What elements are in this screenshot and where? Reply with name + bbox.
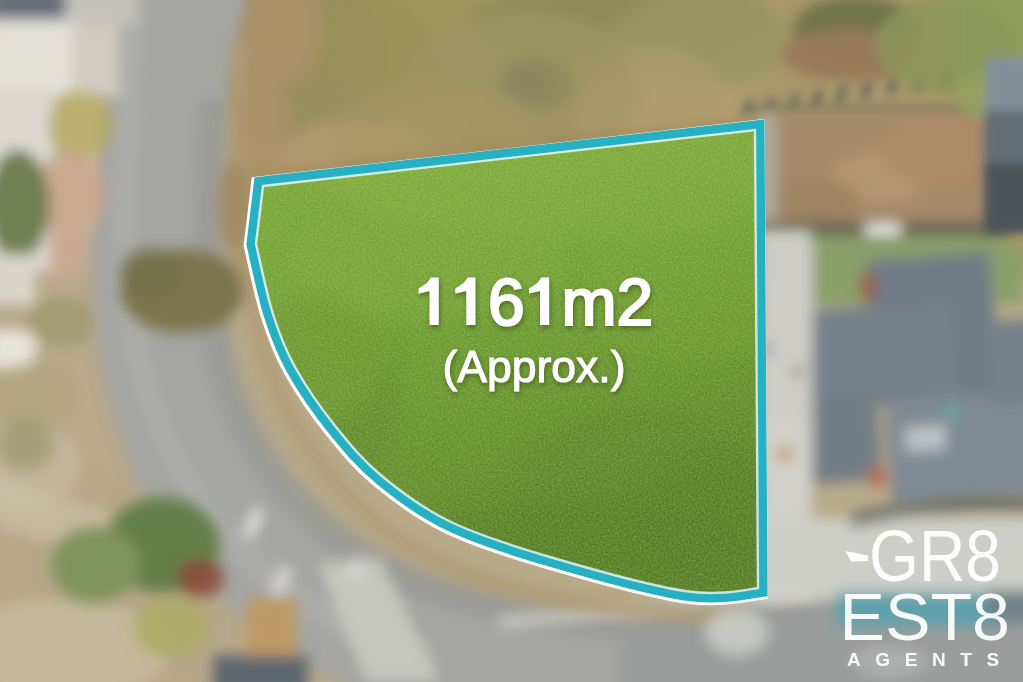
- svg-text:m: m: [562, 265, 617, 339]
- svg-text:EST8: EST8: [840, 580, 1010, 654]
- svg-text:6: 6: [488, 265, 525, 339]
- svg-text:2: 2: [617, 265, 654, 339]
- svg-text:(Approx.): (Approx.): [443, 342, 626, 391]
- svg-text:AGENTS: AGENTS: [847, 649, 1014, 670]
